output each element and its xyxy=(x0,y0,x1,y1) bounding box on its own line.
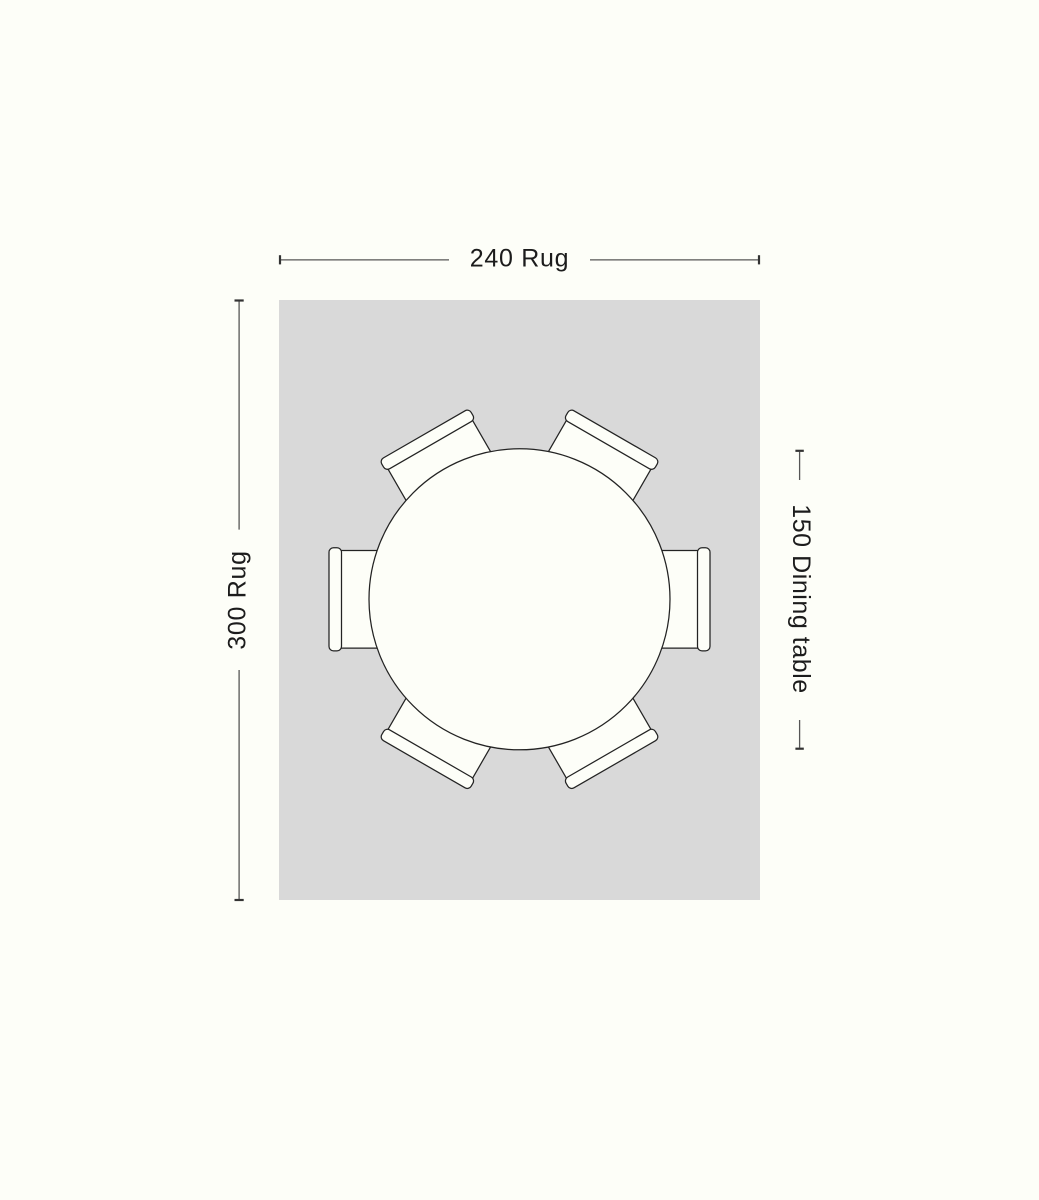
svg-text:240 Rug: 240 Rug xyxy=(470,245,569,273)
svg-text:150 Dining table: 150 Dining table xyxy=(787,504,815,694)
svg-text:300 Rug: 300 Rug xyxy=(224,550,252,649)
